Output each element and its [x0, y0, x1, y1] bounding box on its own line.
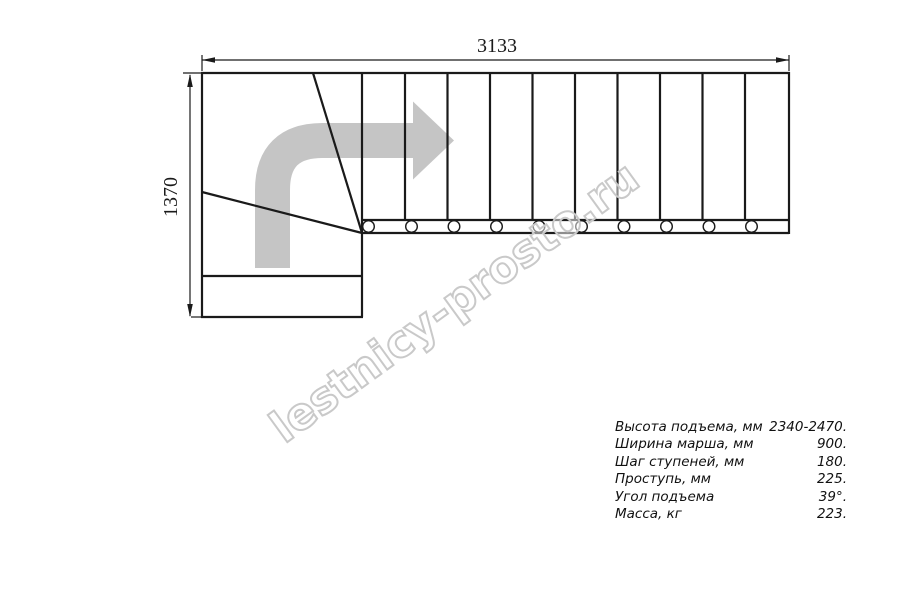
spec-label: Шаг ступеней, мм	[615, 454, 744, 471]
bolt-circle	[661, 221, 673, 233]
bolt-circle	[533, 221, 545, 233]
spec-value: 225.	[817, 471, 847, 488]
dimension-width-label: 3133	[477, 35, 517, 57]
bolt-circle	[363, 221, 375, 233]
dimension-height-label: 1370	[160, 177, 182, 217]
stringer-bolt-circles	[363, 221, 758, 233]
dimension-width: 3133	[202, 35, 789, 71]
spec-value: 223.	[817, 506, 847, 523]
specs-table: Высота подъема, мм 2340-2470. Ширина мар…	[615, 419, 847, 523]
spec-label: Проступь, мм	[615, 471, 711, 488]
dimension-arrow-bottom	[187, 304, 193, 317]
dimension-arrow-top	[187, 74, 193, 87]
dimension-arrow-right	[776, 57, 789, 63]
dimension-arrow-left	[202, 57, 215, 63]
tread-lines	[405, 73, 745, 220]
bolt-circle	[618, 221, 630, 233]
bolt-circle	[576, 221, 588, 233]
spec-row-lift-height: Высота подъема, мм 2340-2470.	[615, 419, 847, 436]
bolt-circle	[746, 221, 758, 233]
direction-arrow	[273, 102, 455, 269]
spec-value: 39°.	[819, 489, 847, 506]
direction-arrow-shaft	[273, 141, 414, 269]
spec-label: Масса, кг	[615, 506, 682, 523]
spec-label: Высота подъема, мм	[615, 419, 763, 436]
spec-value: 2340-2470.	[769, 419, 847, 436]
bolt-circle	[491, 221, 503, 233]
spec-row-climb-angle: Угол подъема 39°.	[615, 489, 847, 506]
spec-row-tread-depth: Проступь, мм 225.	[615, 471, 847, 488]
spec-row-mass: Масса, кг 223.	[615, 506, 847, 523]
spec-label: Угол подъема	[615, 489, 714, 506]
staircase-drawing-page: 3133 1370 lestnicy-prosto.ru Высота подъ…	[0, 0, 900, 600]
spec-value: 900.	[817, 436, 847, 453]
spec-row-step-rise: Шаг ступеней, мм 180.	[615, 454, 847, 471]
bolt-circle	[448, 221, 460, 233]
spec-value: 180.	[817, 454, 847, 471]
spec-row-flight-width: Ширина марша, мм 900.	[615, 436, 847, 453]
bolt-circle	[703, 221, 715, 233]
spec-label: Ширина марша, мм	[615, 436, 754, 453]
dimension-height: 1370	[160, 73, 201, 317]
bolt-circle	[406, 221, 418, 233]
